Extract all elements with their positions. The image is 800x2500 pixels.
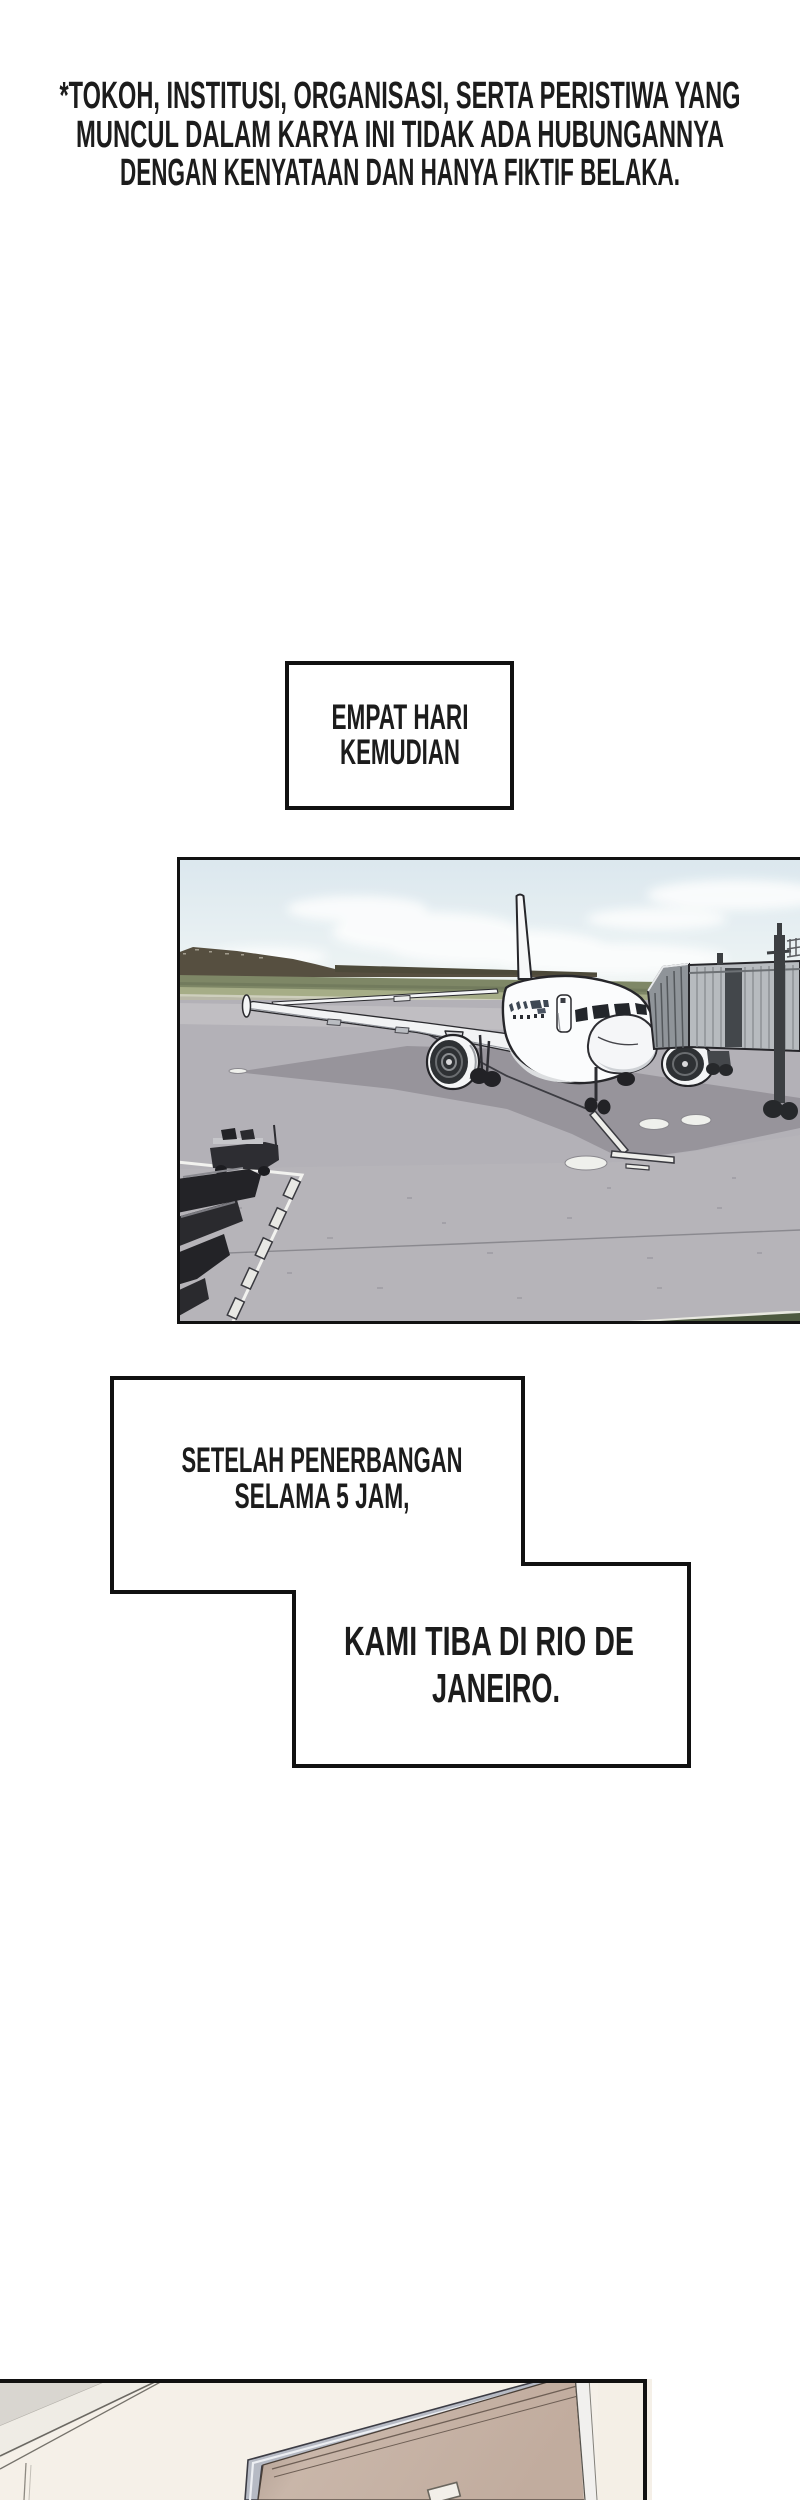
svg-text:MUNCUL DALAM KARYA INI TIDAK A: MUNCUL DALAM KARYA INI TIDAK ADA HUBUNGA… <box>76 114 724 156</box>
svg-text:KEMUDIAN: KEMUDIAN <box>340 733 460 772</box>
svg-text:EMPAT HARI: EMPAT HARI <box>332 698 469 737</box>
svg-text:*TOKOH, INSTITUSI, ORGANISASI,: *TOKOH, INSTITUSI, ORGANISASI, SERTA PER… <box>60 75 741 117</box>
svg-text:SELAMA 5 JAM,: SELAMA 5 JAM, <box>235 1477 410 1516</box>
svg-text:DENGAN KENYATAAN DAN HANYA FIK: DENGAN KENYATAAN DAN HANYA FIKTIF BELAKA… <box>120 152 680 194</box>
svg-text:JANEIRO.: JANEIRO. <box>432 1665 560 1711</box>
svg-text:SETELAH PENERBANGAN: SETELAH PENERBANGAN <box>182 1441 463 1480</box>
svg-text:KAMI TIBA DI RIO DE: KAMI TIBA DI RIO DE <box>344 1618 634 1664</box>
